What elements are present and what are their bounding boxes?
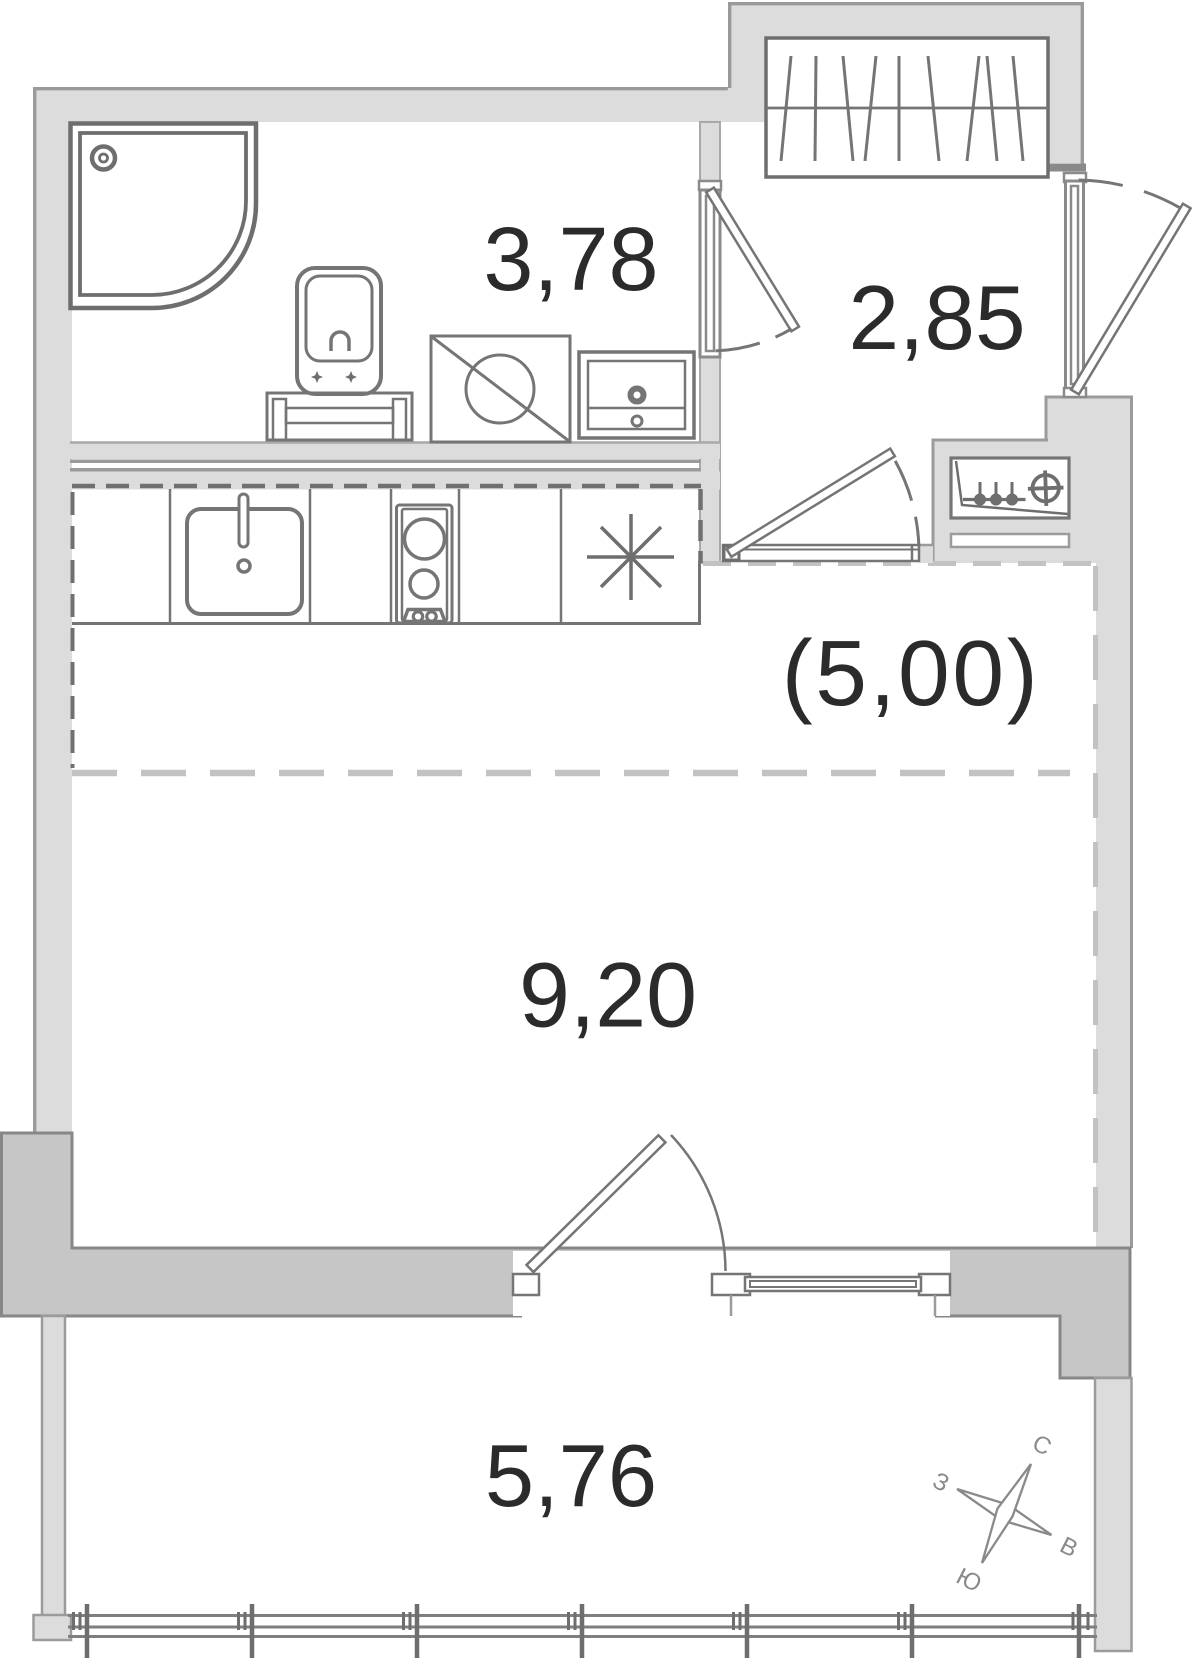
svg-text:Ю: Ю [952, 1563, 986, 1598]
svg-text:(5,00): (5,00) [782, 621, 1041, 725]
svg-text:З: З [928, 1467, 953, 1498]
svg-text:9,20: 9,20 [519, 945, 697, 1047]
svg-text:3,78: 3,78 [483, 210, 658, 310]
svg-text:С: С [1028, 1429, 1056, 1461]
svg-text:2,85: 2,85 [848, 268, 1025, 369]
svg-text:В: В [1056, 1532, 1083, 1563]
svg-text:5,76: 5,76 [485, 1426, 657, 1525]
